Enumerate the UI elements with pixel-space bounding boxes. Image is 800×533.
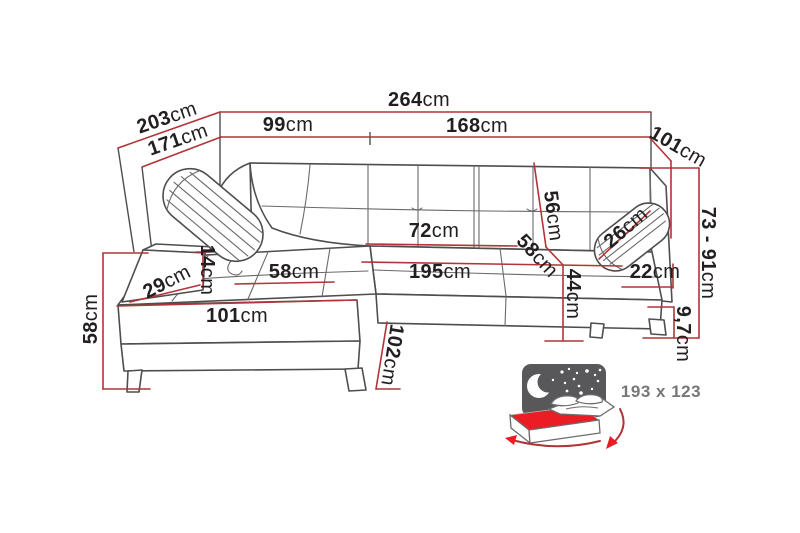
dimension-chaise-front-width-label: 101cm — [206, 306, 268, 326]
sofa-foot — [590, 323, 604, 338]
sofa-foot — [649, 319, 666, 335]
sleeping-area-size-label: 193 x 123 — [621, 382, 701, 402]
dimension-seat-width-label: 195cm — [409, 262, 471, 282]
depth-arrow — [612, 409, 624, 444]
chaise-foot — [345, 368, 366, 391]
chaise-base — [121, 341, 360, 371]
seat-front — [376, 294, 662, 329]
sleeping-function-icon — [505, 364, 624, 449]
sofa-dimension-diagram: 264cm 203cm 171cm 99cm 168cm 101cm 73 - … — [0, 0, 800, 533]
dimension-leg-height-label: 9,7cm — [673, 306, 693, 362]
width-arrow — [512, 440, 600, 446]
dimension-armwall-height-label: 14cm — [197, 245, 217, 296]
dimension-sofa-section-width-label: 168cm — [446, 116, 508, 136]
dimension-chaise-back-width-label: 99cm — [263, 115, 314, 135]
dimension-height-range-label: 73 - 91cm — [698, 207, 718, 300]
dimension-cushion-width-label: 72cm — [409, 221, 460, 241]
dimension-armrest-width-label: 22cm — [630, 262, 681, 282]
dimension-total-width-label: 264cm — [388, 90, 450, 110]
dimension-chaise-seat-width-label: 58cm — [269, 262, 320, 282]
dimension-seat-height-label: 44cm — [563, 269, 583, 320]
dimension-chaise-height-label: 58cm — [81, 294, 101, 345]
